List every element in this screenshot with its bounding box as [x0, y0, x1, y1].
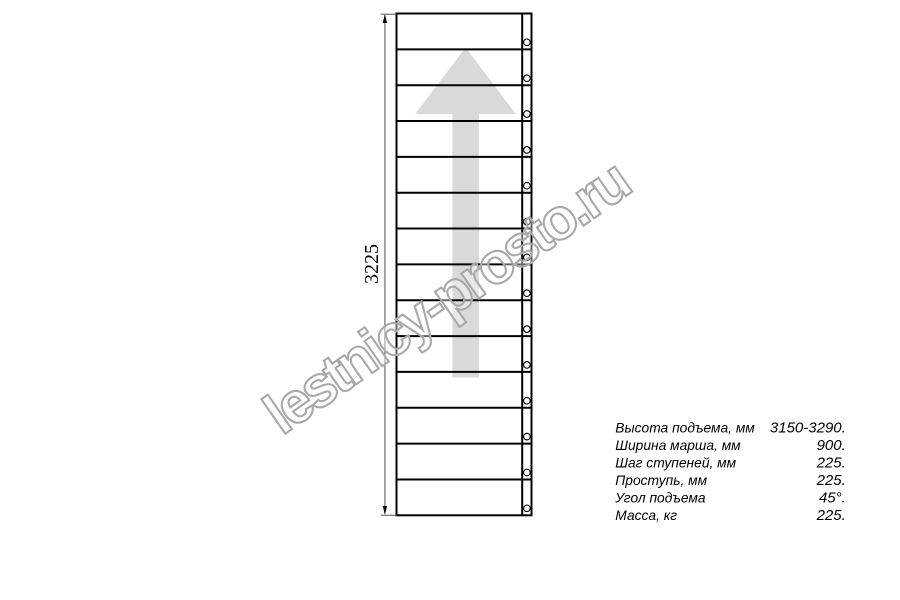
svg-text:225.: 225.: [816, 507, 846, 524]
svg-text:Масса, кг: Масса, кг: [615, 508, 677, 523]
svg-text:Угол подъема: Угол подъема: [614, 490, 706, 505]
svg-text:Проступь, мм: Проступь, мм: [615, 473, 707, 488]
svg-text:Шаг ступеней, мм: Шаг ступеней, мм: [615, 455, 736, 470]
svg-text:3225: 3225: [361, 244, 383, 284]
svg-text:Ширина марша, мм: Ширина марша, мм: [615, 438, 741, 453]
svg-text:225.: 225.: [816, 472, 846, 489]
svg-text:225.: 225.: [816, 454, 846, 471]
svg-text:Высота подъема, мм: Высота подъема, мм: [615, 420, 755, 435]
svg-text:3150-3290.: 3150-3290.: [770, 419, 846, 436]
svg-text:900.: 900.: [817, 437, 846, 454]
svg-text:45°.: 45°.: [819, 489, 846, 506]
